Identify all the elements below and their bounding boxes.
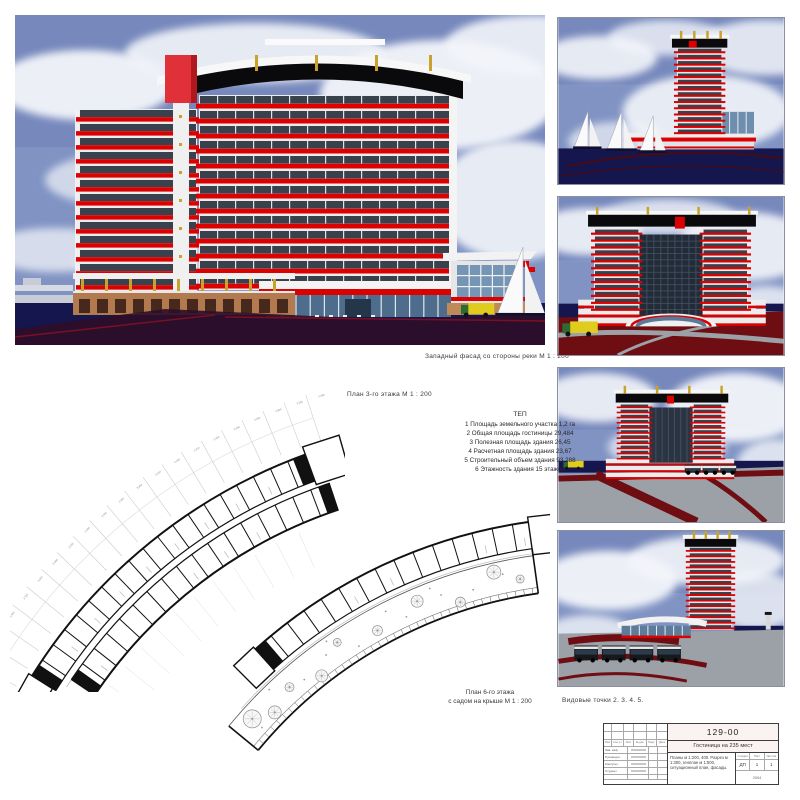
- main-facade-render: [15, 15, 545, 345]
- svg-text:3,300: 3,300: [296, 399, 304, 405]
- svg-text:3,300: 3,300: [233, 425, 241, 432]
- signature-mark: [631, 763, 645, 765]
- svg-text:3,300: 3,300: [83, 526, 91, 534]
- title-block-signatures: Изм Кол.уч Лист № док. Подп. Дата Зав. к…: [604, 724, 668, 784]
- bus: [657, 646, 681, 663]
- svg-text:3,300: 3,300: [22, 592, 29, 600]
- svg-text:3,300: 3,300: [154, 469, 162, 476]
- svg-text:3,300: 3,300: [10, 610, 16, 618]
- view-render-plaza: [557, 196, 785, 356]
- project-title: Гостиница на 235 мест: [668, 741, 778, 753]
- bus: [602, 646, 626, 663]
- lighthouse: [765, 612, 772, 630]
- project-code: 129-00: [668, 724, 778, 741]
- svg-text:3,300: 3,300: [173, 457, 181, 464]
- tree-symbol: [455, 597, 465, 607]
- tree-symbol: [487, 565, 501, 579]
- svg-text:3,300: 3,300: [136, 482, 144, 489]
- main-view-caption: Западный фасад со стороны реки М 1 : 200: [425, 353, 569, 360]
- tep-block: ТЕП 1 Площадь земельного участка 1,2 га …: [430, 410, 610, 474]
- stage-value: ДП: [736, 760, 750, 771]
- stage-sheet-columns: Стадия Лист Листов ДП 1 1 2004: [736, 753, 778, 784]
- signature-mark: [631, 756, 645, 758]
- terrace: [229, 549, 539, 751]
- plan-walls: [234, 514, 550, 709]
- svg-text:3,300: 3,300: [100, 511, 108, 519]
- svg-text:3,300: 3,300: [118, 496, 126, 504]
- tree-symbol: [333, 638, 341, 646]
- tree-symbol: [243, 710, 261, 728]
- svg-text:3,300: 3,300: [275, 407, 283, 413]
- presentation-sheet: Западный фасад со стороны реки М 1 : 200…: [0, 0, 800, 800]
- svg-text:3,300: 3,300: [67, 541, 75, 549]
- title-block: Изм Кол.уч Лист № док. Подп. Дата Зав. к…: [603, 723, 779, 785]
- floor-plan-6: [220, 512, 550, 794]
- tep-title: ТЕП: [430, 410, 610, 419]
- water: [558, 148, 783, 184]
- tree-symbol: [316, 670, 328, 682]
- building: [578, 207, 766, 326]
- svg-text:3,300: 3,300: [193, 445, 201, 452]
- tree-symbol: [285, 683, 294, 692]
- sheet-contents: Планы м 1:200, 400. Разрез м 1:300, генп…: [668, 753, 736, 784]
- svg-text:3,300: 3,300: [212, 435, 220, 442]
- tree-symbol: [268, 706, 281, 719]
- year-cell: 2004: [736, 771, 778, 784]
- viewpoints-caption: Видовые точки 2. 3. 4. 5.: [562, 697, 644, 704]
- svg-text:3,300: 3,300: [318, 393, 326, 399]
- view-render-entrance: [557, 530, 785, 687]
- tree-symbol: [372, 626, 382, 636]
- tree-symbol: [516, 575, 524, 583]
- signature-mark: [631, 770, 645, 772]
- view-render-river: [557, 17, 785, 185]
- tree-symbol: [411, 595, 423, 607]
- bus: [630, 646, 654, 663]
- svg-text:3,300: 3,300: [253, 415, 261, 421]
- plan3-caption: План 3-го этажа М 1 : 200: [347, 391, 432, 398]
- plan6-caption: План 6-го этажа с садом на крыше М 1 : 2…: [430, 688, 550, 706]
- sheets-value: 1: [765, 760, 778, 771]
- sheet-value: 1: [750, 760, 764, 771]
- signature-mark: [631, 749, 645, 751]
- svg-text:3,300: 3,300: [36, 575, 44, 583]
- bus: [574, 646, 598, 663]
- svg-text:3,300: 3,300: [51, 558, 59, 566]
